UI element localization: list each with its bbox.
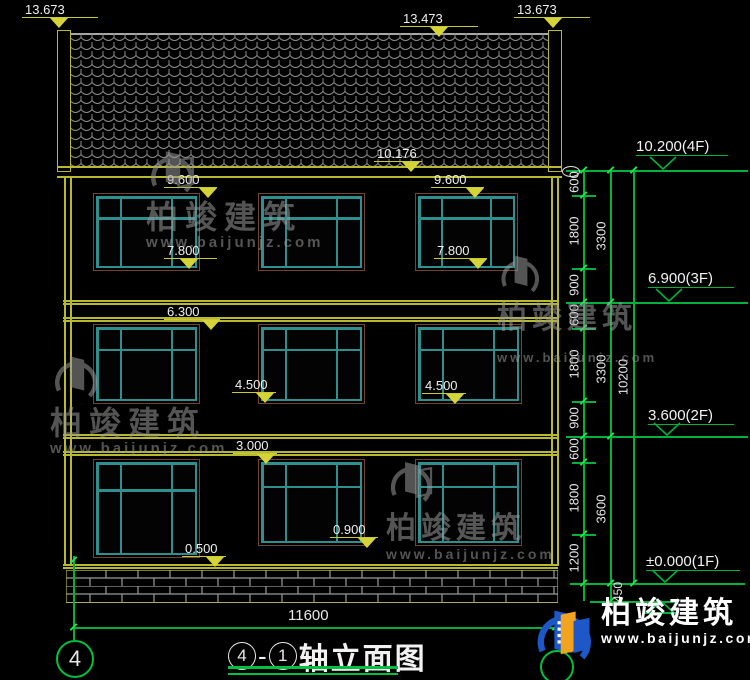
drawing-line — [63, 434, 558, 436]
elev-marker-2f-head: 6.300 — [164, 305, 220, 320]
dim-chain-a-value: 600 — [567, 438, 582, 460]
dim-chain-b-value: 3300 — [594, 355, 609, 384]
window-pane — [287, 330, 336, 349]
marker-triangle-icon — [358, 538, 376, 548]
marker-triangle-icon — [446, 394, 464, 404]
dim-chain-a-value: 900 — [567, 274, 582, 296]
dim-chain-b-value: 3300 — [594, 222, 609, 251]
window-pane — [99, 351, 120, 398]
title-circle-b-num: 1 — [278, 646, 287, 666]
elev-value: 13.673 — [514, 3, 590, 17]
window-pane — [264, 199, 285, 218]
window-pane — [421, 488, 442, 540]
drawing-line — [63, 454, 558, 456]
window-pane — [495, 351, 516, 398]
window-pane — [444, 330, 493, 349]
dim-chain-a-value: 600 — [567, 304, 582, 326]
level-triangle-icon — [649, 156, 677, 171]
window-pane — [421, 330, 442, 349]
marker-triangle-icon — [199, 188, 217, 198]
elev-value: 4.500 — [232, 378, 276, 392]
window-pane — [338, 330, 359, 349]
elev-marker-3f-head-a: 9.600 — [164, 173, 217, 188]
roof-gable-parapet-left — [57, 30, 71, 172]
marker-triangle-icon — [257, 454, 275, 464]
drawing-line — [633, 170, 635, 583]
drawing-line — [64, 178, 66, 566]
level-triangle-icon — [655, 288, 683, 303]
axis-bubble-4: 4 — [56, 640, 94, 678]
elev-marker-1f-sill-a: 0.500 — [182, 542, 226, 557]
elev-marker-3f-sill-a: 7.800 — [164, 244, 217, 259]
elev-marker-eave: 10.176 — [374, 147, 422, 162]
window-pane — [287, 465, 336, 486]
elev-marker-1f-sill-b: 0.900 — [330, 523, 378, 538]
title-underline-thin — [228, 673, 398, 675]
window-pane — [421, 465, 442, 486]
drawing-line — [63, 451, 558, 453]
elev-marker-3f-sill-b: 7.800 — [434, 244, 487, 259]
window-frame — [261, 196, 362, 268]
marker-triangle-icon — [50, 18, 68, 28]
elev-value: 3.000 — [233, 439, 277, 453]
window-pane — [287, 488, 336, 540]
window-pane — [122, 492, 171, 553]
level-value: 10.200(4F) — [636, 139, 728, 155]
window-pane — [122, 465, 171, 490]
window-pane — [492, 220, 512, 266]
elev-marker-ridge: 13.473 — [400, 12, 478, 27]
dim-total-value: 10200 — [616, 359, 631, 395]
roof-tile-field — [70, 33, 548, 166]
window-pane — [173, 199, 194, 218]
marker-triangle-icon — [180, 259, 198, 269]
window-pane — [287, 199, 336, 218]
roof-gable-parapet-right — [548, 30, 562, 172]
drawing-line — [63, 437, 558, 439]
window-pane — [99, 330, 120, 349]
window-pane — [444, 465, 493, 486]
title-underline-thick — [228, 666, 398, 669]
drawing-line — [551, 178, 553, 566]
drawing-line — [63, 300, 558, 302]
footer-logo: 柏竣建筑 www.baijunjz.com — [533, 598, 750, 672]
window-pane — [492, 199, 512, 218]
marker-triangle-icon — [402, 162, 420, 172]
drawing-line — [63, 567, 558, 569]
elev-value: 4.500 — [422, 379, 466, 393]
axis-number: 4 — [69, 646, 81, 672]
dim-chain-a-value: 600 — [567, 171, 582, 193]
window-pane — [122, 351, 171, 398]
window-pane — [338, 351, 359, 398]
elev-value: 9.600 — [164, 173, 217, 187]
drawing-line — [70, 178, 72, 566]
elev-value: 13.473 — [400, 12, 478, 26]
window-pane — [287, 351, 336, 398]
dim-chain-a-value: 900 — [567, 407, 582, 429]
window-pane — [495, 465, 516, 486]
elev-marker-1f-head: 3.000 — [233, 439, 277, 454]
window-frame — [96, 327, 197, 401]
level-triangle-icon — [653, 422, 681, 437]
window-pane — [444, 488, 493, 540]
window-pane — [338, 199, 359, 218]
eave-line-top — [57, 166, 562, 168]
watermark-url: www.baijunjz.com — [386, 546, 555, 562]
width-dimension-value: 11600 — [288, 607, 329, 624]
drawing-line — [63, 303, 558, 305]
window-pane — [264, 220, 285, 266]
dim-chain-a-value: 1800 — [567, 484, 582, 513]
window-pane — [122, 199, 171, 218]
window-pane — [99, 220, 120, 266]
level-marker-4f: 10.200(4F) — [636, 139, 728, 156]
drawing-line — [610, 170, 612, 601]
window-pane — [264, 488, 285, 540]
elev-marker-3f-head-b: 9.600 — [431, 173, 484, 188]
elev-value: 10.176 — [374, 147, 422, 161]
window — [93, 324, 200, 404]
brick-plinth — [66, 570, 558, 603]
dim-chain-a-value: 1800 — [567, 217, 582, 246]
elev-value: 7.800 — [434, 244, 487, 258]
window — [415, 459, 522, 546]
cad-elevation-drawing: 柏竣建筑 www.baijunjz.com 柏竣建筑 www.baijunjz.… — [0, 0, 750, 680]
window-frame — [418, 462, 519, 543]
elev-value: 9.600 — [431, 173, 484, 187]
window-frame — [261, 327, 362, 401]
marker-triangle-icon — [469, 259, 487, 269]
drawing-line — [63, 320, 558, 322]
window — [258, 193, 365, 271]
elev-value: 6.300 — [164, 305, 220, 319]
elev-marker-2f-sill-a: 4.500 — [232, 378, 276, 393]
title-circle-a-num: 4 — [237, 646, 246, 666]
footer-logo-icon — [533, 598, 597, 672]
level-marker-3f: 6.900(3F) — [648, 271, 734, 288]
elev-marker-roof-left: 13.673 — [22, 3, 98, 18]
window-pane — [338, 465, 359, 486]
marker-triangle-icon — [256, 393, 274, 403]
window-pane — [338, 220, 359, 266]
window-pane — [495, 488, 516, 540]
level-value: ±0.000(1F) — [646, 554, 740, 570]
window-pane — [173, 330, 194, 349]
drawing-line — [583, 170, 585, 601]
level-triangle-icon — [651, 569, 679, 584]
eave-line-bottom — [57, 176, 562, 178]
elev-value: 13.673 — [22, 3, 98, 17]
dim-chain-a-value: 1200 — [567, 544, 582, 573]
drawing-line — [73, 627, 557, 629]
window-pane — [287, 220, 336, 266]
title-text: 轴立面图 — [299, 634, 427, 678]
drawing-line — [557, 178, 559, 566]
window-pane — [421, 199, 441, 218]
dim-chain-a-value: 1800 — [567, 350, 582, 379]
marker-triangle-icon — [202, 320, 220, 330]
level-value: 6.900(3F) — [648, 271, 734, 287]
footer-logo-url: www.baijunjz.com — [601, 630, 750, 646]
elev-marker-2f-sill-b: 4.500 — [422, 379, 466, 394]
marker-triangle-icon — [544, 18, 562, 28]
elev-value: 0.500 — [182, 542, 226, 556]
window-pane — [99, 492, 120, 553]
watermark-brand: 柏竣建筑 — [50, 405, 206, 441]
window-pane — [173, 351, 194, 398]
dim-chain-b-value: 3600 — [594, 495, 609, 524]
footer-logo-brand: 柏竣建筑 — [601, 598, 750, 630]
marker-triangle-icon — [430, 27, 448, 37]
window-pane — [122, 330, 171, 349]
window — [415, 193, 518, 271]
drawing-line — [63, 564, 558, 566]
window-pane — [264, 330, 285, 349]
marker-triangle-icon — [206, 557, 224, 567]
window-pane — [173, 465, 194, 490]
window-pane — [99, 199, 120, 218]
elev-marker-roof-right: 13.673 — [514, 3, 590, 18]
window-pane — [495, 330, 516, 349]
marker-triangle-icon — [466, 188, 484, 198]
drawing-title: 4 - 1 轴立面图 — [228, 634, 427, 678]
window-pane — [264, 465, 285, 486]
elev-value: 7.800 — [164, 244, 217, 258]
elev-value: 0.900 — [330, 523, 378, 537]
window-pane — [99, 465, 120, 490]
window-pane — [443, 199, 490, 218]
drawing-line — [63, 317, 558, 319]
